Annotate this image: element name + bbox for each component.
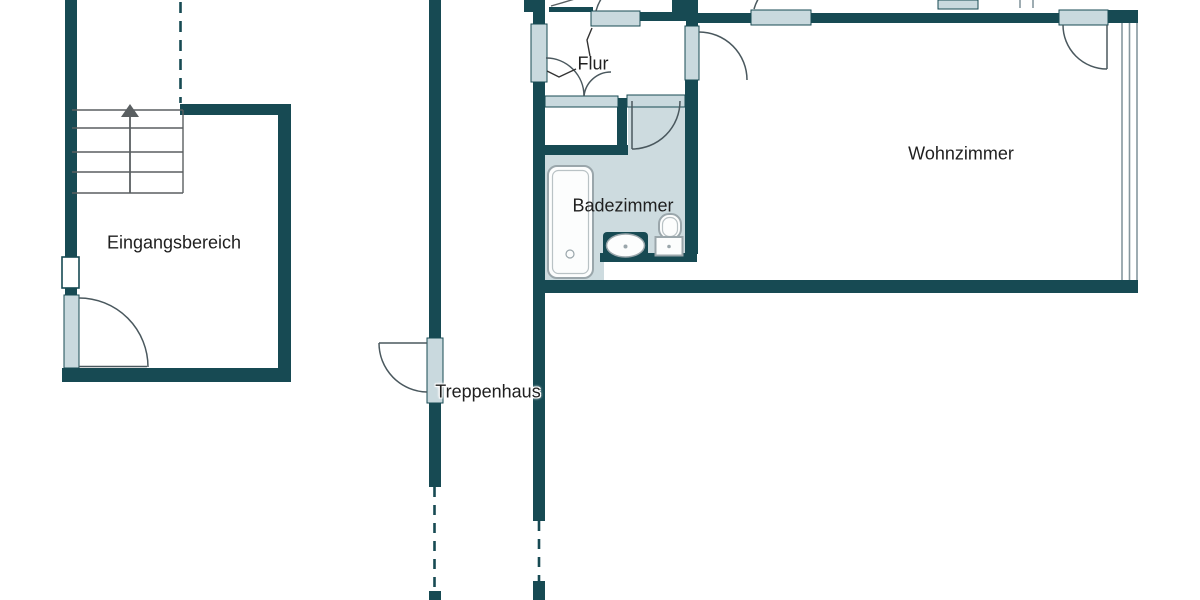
door-threshold [545,96,618,107]
door-threshold [591,11,640,26]
wall-segment [810,13,1060,23]
door-threshold [685,26,699,80]
door-threshold [751,10,811,25]
wall-segment [180,104,291,115]
room-label-eingangsbereich: Eingangsbereich [107,233,241,254]
floor-plan: Eingangsbereich Treppenhaus Flur Badezim… [0,0,1200,600]
bathtub-outline [548,166,593,278]
wall-segment [429,0,441,339]
cutoff-fixture [938,0,978,9]
door-swing-arc [584,72,611,96]
door-threshold [64,295,79,368]
cutoff-door-swing-arc [596,0,619,11]
wall-segment [429,402,441,487]
wall-segment [685,80,698,254]
wall-segment [533,81,545,281]
toilet-button [667,245,671,249]
walls [62,0,1138,600]
window [62,257,79,288]
room-label-treppenhaus: Treppenhaus [435,382,540,403]
door-threshold [531,24,547,82]
wall-segment [65,0,77,258]
wall-segment [540,145,628,155]
bathtub-drain [566,250,574,258]
floor-plan-drawing [0,0,1200,600]
door-swing-arc [379,343,427,392]
wall-segment [533,293,545,521]
room-label-badezimmer: Badezimmer [572,196,673,217]
wall-segment [533,581,545,600]
room-label-wohnzimmer: Wohnzimmer [908,144,1014,165]
wall-segment [278,104,291,382]
leader-line [547,69,576,77]
wall-segment [62,368,291,382]
wall-segment [533,280,1138,293]
bathtub-icon [548,166,593,278]
wall-segment [549,7,593,12]
wall-segment [672,0,698,14]
staircase-icon [72,104,183,193]
door-swing-arc [699,32,747,80]
washbasin-drain [624,245,628,249]
cutoff-door-swing-arc [551,0,587,6]
leader-line [587,28,592,56]
wall-segment [524,0,545,12]
room-label-flur: Flur [578,54,609,75]
wall-segment [429,591,441,600]
wall-segment [1107,10,1138,23]
service-recess [604,262,683,280]
door-swing-arc [1063,25,1107,69]
door-threshold [627,95,685,107]
dashed-lines [181,2,540,591]
wall-segment [698,13,752,23]
cutoff-door-swing-arc [754,0,773,9]
washbasin-icon [603,232,648,259]
door-threshold [1059,10,1108,25]
door-swing-arc [79,298,148,367]
